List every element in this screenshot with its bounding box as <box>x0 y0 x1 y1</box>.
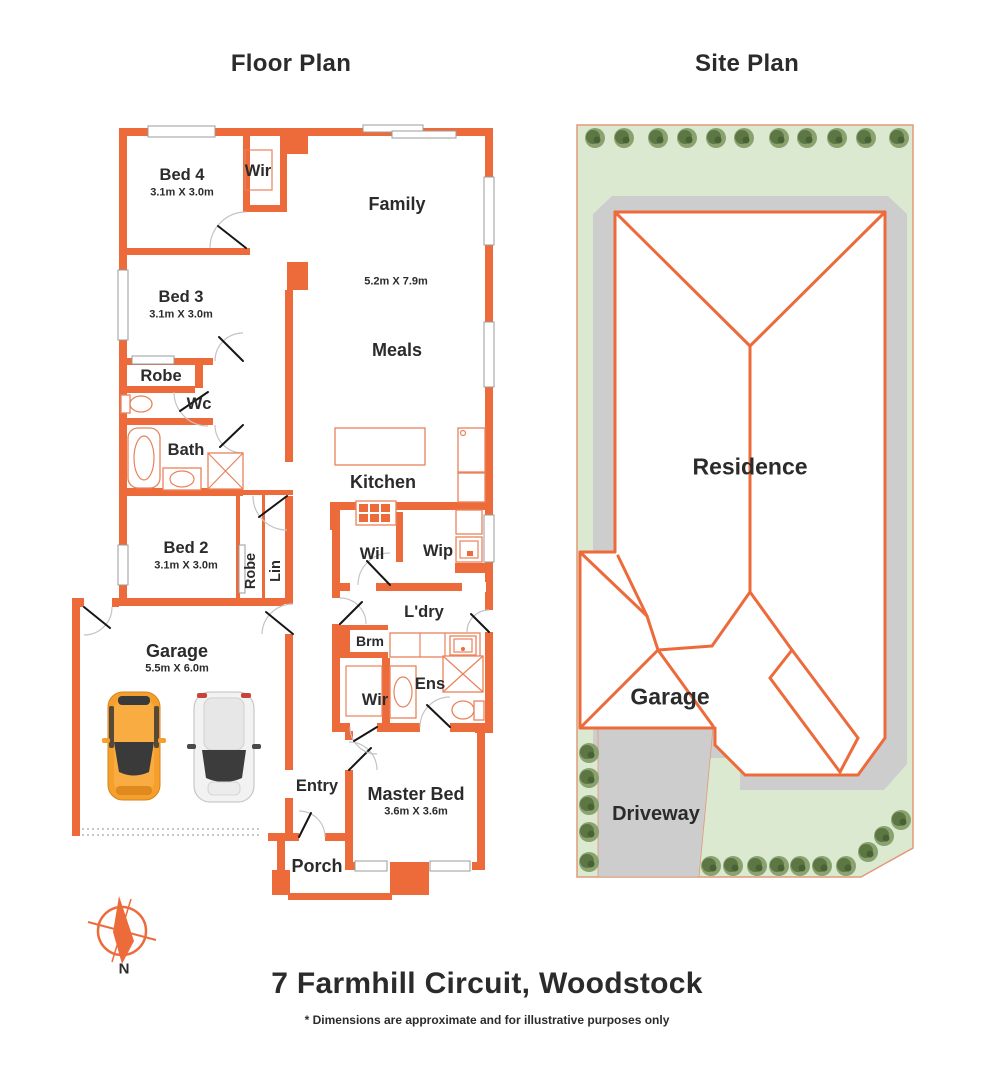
bath-shower-icon <box>208 453 243 489</box>
site-plan-drawing <box>577 125 913 877</box>
room-label-bath: Bath <box>168 442 205 459</box>
room-label-family: Family <box>368 195 425 213</box>
room-label-bed3: Bed 3 <box>159 289 204 306</box>
pantry-sink-icon <box>456 510 482 562</box>
cooktop-icon <box>356 501 396 525</box>
room-label-garage: Garage <box>146 642 208 660</box>
room-label-lin: Lin <box>269 560 284 582</box>
room-dims-master-bed: 3.6m X 3.6m <box>384 807 448 818</box>
site-label-residence: Residence <box>692 456 807 479</box>
room-label-ldry: L'dry <box>404 604 444 621</box>
site-plan-title: Site Plan <box>695 52 799 76</box>
laundry-bench-icon <box>390 633 480 657</box>
bath-vanity-icon <box>163 468 201 490</box>
car-orange-icon <box>102 692 166 800</box>
room-label-wir-master: Wir <box>362 692 388 709</box>
residence-roof <box>580 212 885 775</box>
site-label-driveway: Driveway <box>612 804 700 824</box>
room-label-robe-bed3: Robe <box>140 368 181 385</box>
toilet-wc-icon <box>121 395 152 413</box>
fixtures <box>121 150 485 720</box>
plan-drawing <box>0 0 994 1080</box>
room-label-robe-bed2: Robe <box>244 553 259 589</box>
fridge-icon <box>458 428 485 502</box>
disclaimer-text: * Dimensions are approximate and for ill… <box>305 1014 670 1026</box>
room-dims-bed3: 3.1m X 3.0m <box>149 310 213 321</box>
room-label-wc: Wc <box>187 396 212 413</box>
car-white-icon <box>187 692 261 802</box>
toilet-ens-icon <box>452 701 484 720</box>
room-label-master-bed: Master Bed <box>367 785 464 803</box>
room-dims-bed2: 3.1m X 3.0m <box>154 561 218 572</box>
room-label-bed2: Bed 2 <box>164 540 209 557</box>
room-label-wil: Wil <box>360 546 385 563</box>
room-label-porch: Porch <box>291 857 342 875</box>
room-label-kitchen: Kitchen <box>350 473 416 491</box>
room-label-wir-top: Wir <box>245 163 271 180</box>
room-label-wip: Wip <box>423 543 453 560</box>
bathtub-icon <box>128 428 160 488</box>
ens-shower-icon <box>443 656 483 692</box>
room-dims-family: 5.2m X 7.9m <box>364 277 428 288</box>
site-label-garage: Garage <box>630 686 709 709</box>
garage-door <box>80 827 263 837</box>
floor-plan-title: Floor Plan <box>231 52 351 76</box>
room-dims-bed4: 3.1m X 3.0m <box>150 188 214 199</box>
room-label-entry: Entry <box>296 778 338 795</box>
room-label-meals: Meals <box>372 341 422 359</box>
compass-icon <box>88 896 156 964</box>
room-label-bed4: Bed 4 <box>160 167 205 184</box>
room-dims-garage: 5.5m X 6.0m <box>145 664 209 675</box>
address-title: 7 Farmhill Circuit, Woodstock <box>271 969 703 999</box>
windows <box>118 125 494 871</box>
floorplan-page: Floor Plan Site Plan Bed 4 3.1m X 3.0m W… <box>0 0 994 1080</box>
kitchen-island-icon <box>335 428 425 465</box>
room-label-brm: Brm <box>356 634 384 648</box>
room-label-ens: Ens <box>415 676 445 693</box>
ens-vanity-icon <box>390 666 416 718</box>
compass-north-label: N <box>119 962 130 977</box>
